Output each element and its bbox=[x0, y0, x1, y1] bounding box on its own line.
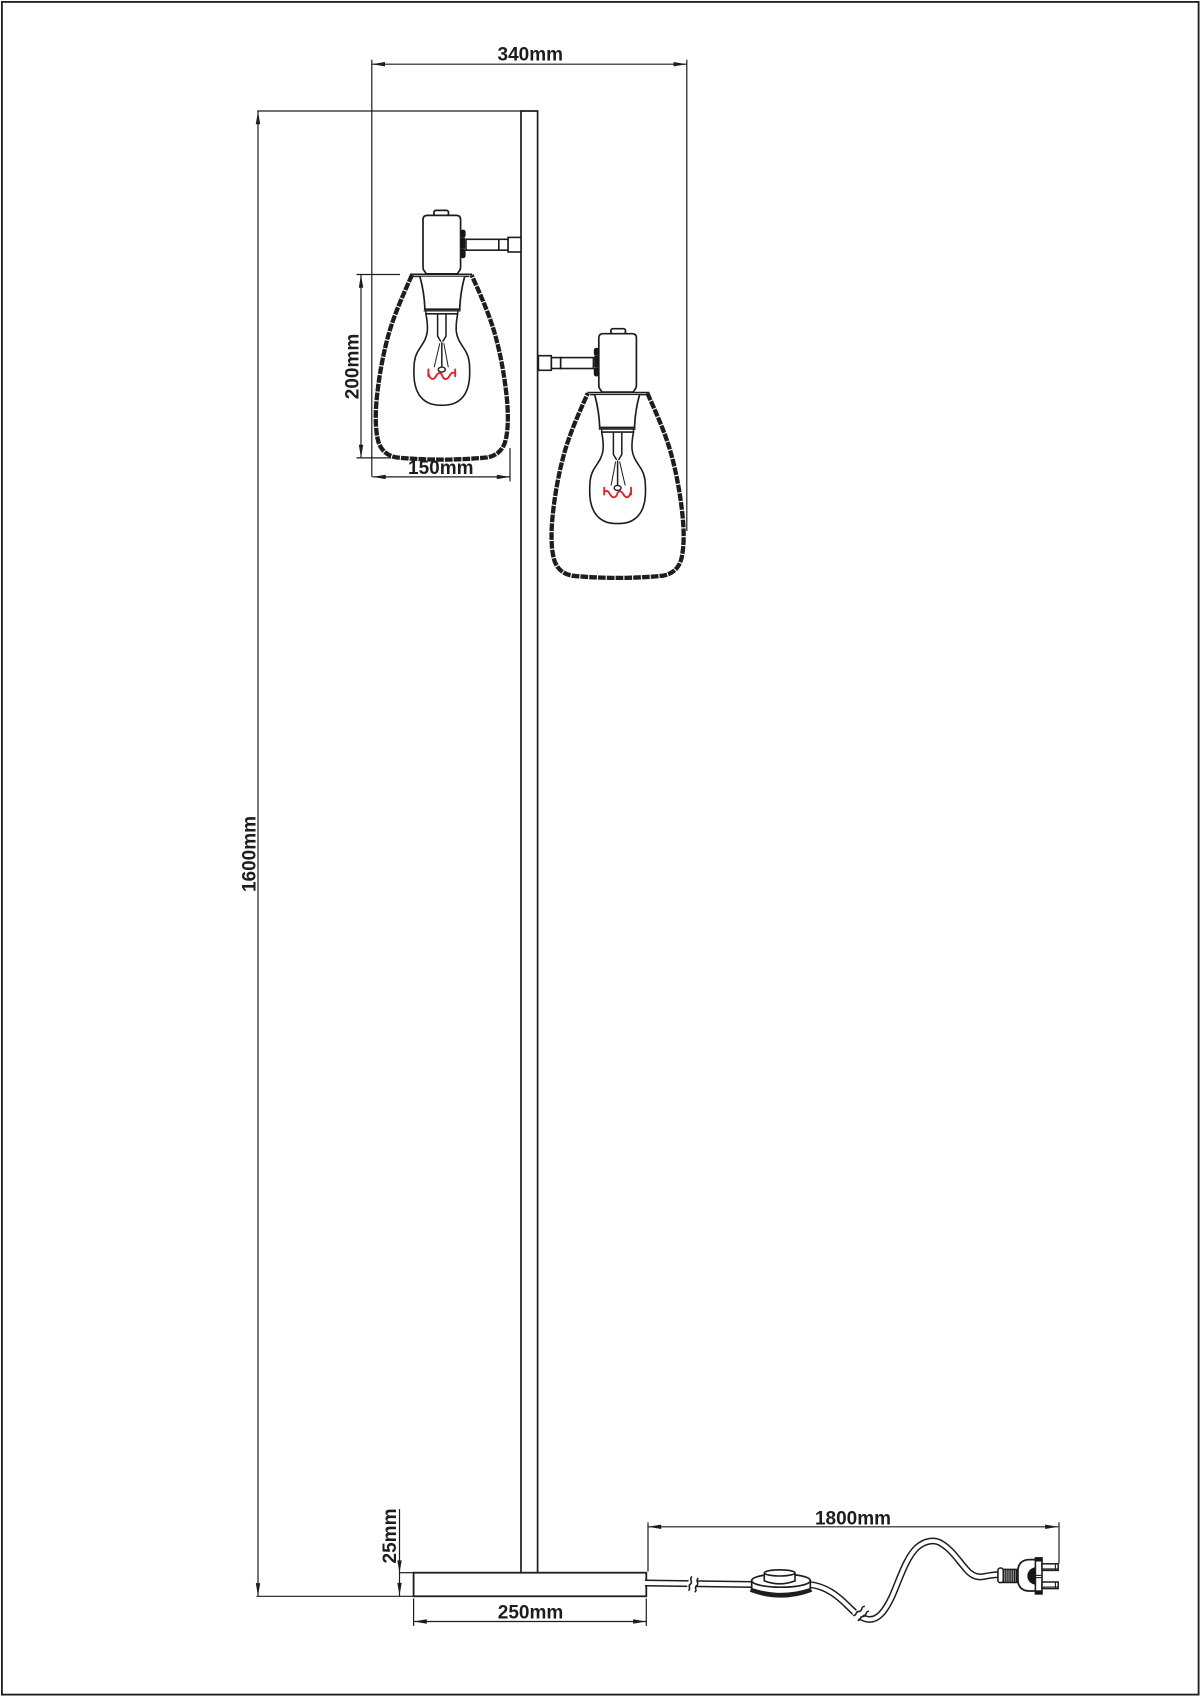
svg-text:25mm: 25mm bbox=[380, 1509, 401, 1564]
svg-text:200mm: 200mm bbox=[343, 334, 364, 400]
svg-text:1800mm: 1800mm bbox=[815, 1509, 891, 1530]
svg-text:1600mm: 1600mm bbox=[240, 816, 261, 892]
svg-text:150mm: 150mm bbox=[408, 458, 474, 479]
svg-text:250mm: 250mm bbox=[498, 1603, 564, 1624]
svg-text:340mm: 340mm bbox=[498, 45, 564, 66]
